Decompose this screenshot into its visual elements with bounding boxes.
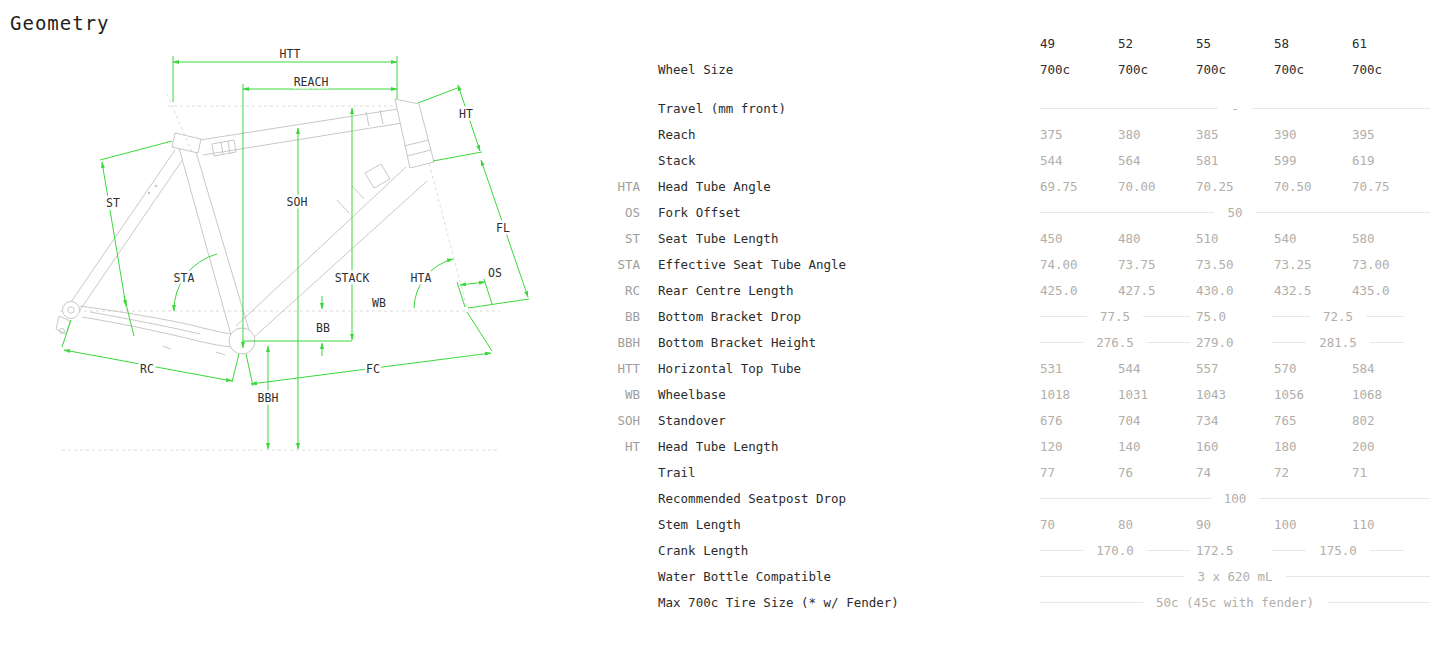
dim-label-fl: FL bbox=[496, 221, 510, 235]
table-row: Water Bottle Compatible3 x 620 mL bbox=[592, 563, 1430, 589]
row-label: Standover bbox=[658, 413, 1040, 428]
cell-value: 480 bbox=[1118, 231, 1196, 246]
cell-value: 531 bbox=[1040, 361, 1118, 376]
table-row: STSeat Tube Length450480510540580 bbox=[592, 225, 1430, 251]
table-header-row: 4952555861 bbox=[592, 30, 1430, 56]
cell-value: 427.5 bbox=[1118, 283, 1196, 298]
shared-value: - bbox=[1231, 101, 1239, 116]
cell-value: 73.50 bbox=[1196, 257, 1274, 272]
span-rule bbox=[1040, 108, 1218, 109]
shared-value-right-text: 175.0 bbox=[1319, 543, 1357, 558]
cell-value: 1031 bbox=[1118, 387, 1196, 402]
row-values: 375380385390395 bbox=[1040, 127, 1430, 142]
row-values: 700c700c700c700c700c bbox=[1040, 62, 1430, 77]
cell-value: 390 bbox=[1274, 127, 1352, 142]
row-label: Head Tube Length bbox=[658, 439, 1040, 454]
row-label: Horizontal Top Tube bbox=[658, 361, 1040, 376]
cell-value: 425.0 bbox=[1040, 283, 1118, 298]
table-row: Max 700c Tire Size (* w/ Fender)50c (45c… bbox=[592, 589, 1430, 615]
cell-value: 70 bbox=[1040, 517, 1118, 532]
row-values: - bbox=[1040, 101, 1430, 116]
cell-value: 765 bbox=[1274, 413, 1352, 428]
row-code: STA bbox=[592, 257, 640, 272]
cell-value: 734 bbox=[1196, 413, 1274, 428]
cell-value: 599 bbox=[1274, 153, 1352, 168]
dim-label-hta: HTA bbox=[411, 271, 432, 285]
table-row: HTHead Tube Length120140160180200 bbox=[592, 433, 1430, 459]
table-row: Reach375380385390395 bbox=[592, 121, 1430, 147]
dim-label-sta: STA bbox=[174, 271, 195, 285]
cell-value: 540 bbox=[1274, 231, 1352, 246]
row-label: Bottom Bracket Height bbox=[658, 335, 1040, 350]
cell-value: 73.00 bbox=[1352, 257, 1430, 272]
cell-value: 584 bbox=[1352, 361, 1430, 376]
row-label: Bottom Bracket Drop bbox=[658, 309, 1040, 324]
cell-value: 110 bbox=[1352, 517, 1430, 532]
cell-value: 1056 bbox=[1274, 387, 1352, 402]
construction-lines bbox=[60, 94, 500, 450]
table-row-wheel-size: Wheel Size700c700c700c700c700c bbox=[592, 56, 1430, 82]
dim-label-rc: RC bbox=[140, 362, 154, 376]
table-row: Travel (mm front)- bbox=[592, 95, 1430, 121]
cell-value: 395 bbox=[1352, 127, 1430, 142]
table-row: OSFork Offset50 bbox=[592, 199, 1430, 225]
cell-value: 90 bbox=[1196, 517, 1274, 532]
row-code: OS bbox=[592, 205, 640, 220]
span-rule bbox=[1040, 576, 1184, 577]
dim-label-reach: REACH bbox=[294, 75, 329, 89]
wheel-size-value: 700c bbox=[1352, 62, 1430, 77]
cell-value: 676 bbox=[1040, 413, 1118, 428]
row-values: 100 bbox=[1040, 491, 1430, 506]
table-row: WBWheelbase10181031104310561068 bbox=[592, 381, 1430, 407]
row-label: Crank Length bbox=[658, 543, 1040, 558]
shared-value-right: 175.0 bbox=[1272, 543, 1404, 558]
column-header-size: 52 bbox=[1118, 36, 1196, 51]
table-row: HTAHead Tube Angle69.7570.0070.2570.5070… bbox=[592, 173, 1430, 199]
row-values: 77.575.072.5 bbox=[1040, 309, 1430, 324]
frame-geometry-diagram: HTT REACH HT ST SOH FL STA STACK HTA OS … bbox=[0, 0, 560, 470]
geometry-page: Geometry bbox=[0, 0, 1445, 651]
column-header-size: 61 bbox=[1352, 36, 1430, 51]
dim-label-fc: FC bbox=[366, 362, 380, 376]
row-code: WB bbox=[592, 387, 640, 402]
row-label: Travel (mm front) bbox=[658, 101, 1040, 116]
row-code: HT bbox=[592, 439, 640, 454]
cell-value: 619 bbox=[1352, 153, 1430, 168]
column-header-size: 49 bbox=[1040, 36, 1118, 51]
row-values: 69.7570.0070.2570.5070.75 bbox=[1040, 179, 1430, 194]
span-rule bbox=[1370, 342, 1404, 343]
table-row: Stack544564581599619 bbox=[592, 147, 1430, 173]
row-code: RC bbox=[592, 283, 640, 298]
cell-value: 70.00 bbox=[1118, 179, 1196, 194]
wheel-size-value: 700c bbox=[1118, 62, 1196, 77]
row-values: 50 bbox=[1040, 205, 1430, 220]
row-values: 120140160180200 bbox=[1040, 439, 1430, 454]
row-label: Wheelbase bbox=[658, 387, 1040, 402]
cell-value: 75.0 bbox=[1190, 309, 1272, 324]
dim-label-bb: BB bbox=[316, 321, 330, 335]
row-values: 531544557570584 bbox=[1040, 361, 1430, 376]
row-values: 676704734765802 bbox=[1040, 413, 1430, 428]
shared-value-right-text: 281.5 bbox=[1319, 335, 1357, 350]
table-row: Trail7776747271 bbox=[592, 459, 1430, 485]
span-rule bbox=[1327, 602, 1430, 603]
shared-value-left-text: 77.5 bbox=[1100, 309, 1130, 324]
cell-value: 510 bbox=[1196, 231, 1274, 246]
cell-value: 1043 bbox=[1196, 387, 1274, 402]
shared-value: 50c (45c with fender) bbox=[1156, 595, 1314, 610]
shared-value: 50 bbox=[1227, 205, 1242, 220]
span-rule bbox=[1272, 550, 1306, 551]
row-values: 10181031104310561068 bbox=[1040, 387, 1430, 402]
cell-value: 160 bbox=[1196, 439, 1274, 454]
shared-value-right-text: 72.5 bbox=[1323, 309, 1353, 324]
cell-value: 380 bbox=[1118, 127, 1196, 142]
cell-value: 430.0 bbox=[1196, 283, 1274, 298]
table-row: RCRear Centre Length425.0427.5430.0432.5… bbox=[592, 277, 1430, 303]
span-rule bbox=[1286, 576, 1430, 577]
span-rule bbox=[1366, 316, 1404, 317]
cell-value: 71 bbox=[1352, 465, 1430, 480]
span-rule bbox=[1040, 212, 1214, 213]
cell-value: 581 bbox=[1196, 153, 1274, 168]
row-label: Reach bbox=[658, 127, 1040, 142]
row-label: Fork Offset bbox=[658, 205, 1040, 220]
cell-value: 77 bbox=[1040, 465, 1118, 480]
span-rule bbox=[1370, 550, 1404, 551]
dim-label-soh: SOH bbox=[287, 195, 308, 209]
span-rule bbox=[1256, 212, 1430, 213]
cell-value: 120 bbox=[1040, 439, 1118, 454]
shared-value-left-text: 276.5 bbox=[1096, 335, 1134, 350]
wheel-size-value: 700c bbox=[1040, 62, 1118, 77]
cell-value: 450 bbox=[1040, 231, 1118, 246]
dim-label-stack: STACK bbox=[335, 271, 370, 285]
shared-value-left: 170.0 bbox=[1040, 543, 1190, 558]
row-label: Rear Centre Length bbox=[658, 283, 1040, 298]
row-values: 7776747271 bbox=[1040, 465, 1430, 480]
table-row: HTTHorizontal Top Tube531544557570584 bbox=[592, 355, 1430, 381]
row-label: Effective Seat Tube Angle bbox=[658, 257, 1040, 272]
cell-value: 74 bbox=[1196, 465, 1274, 480]
span-rule bbox=[1143, 316, 1190, 317]
cell-value: 180 bbox=[1274, 439, 1352, 454]
row-code: SOH bbox=[592, 413, 640, 428]
cell-value: 73.75 bbox=[1118, 257, 1196, 272]
cell-value: 74.00 bbox=[1040, 257, 1118, 272]
table-row: Stem Length708090100110 bbox=[592, 511, 1430, 537]
dim-label-os: OS bbox=[488, 266, 502, 280]
shared-value-right: 281.5 bbox=[1272, 335, 1404, 350]
cell-value: 564 bbox=[1118, 153, 1196, 168]
row-code: HTT bbox=[592, 361, 640, 376]
shared-value: 3 x 620 mL bbox=[1197, 569, 1272, 584]
cell-value: 69.75 bbox=[1040, 179, 1118, 194]
row-label: Head Tube Angle bbox=[658, 179, 1040, 194]
row-label: Wheel Size bbox=[658, 62, 1040, 77]
cell-value: 375 bbox=[1040, 127, 1118, 142]
row-values: 170.0172.5175.0 bbox=[1040, 543, 1430, 558]
dim-label-htt: HTT bbox=[280, 47, 301, 61]
column-header-size: 55 bbox=[1196, 36, 1274, 51]
cell-value: 570 bbox=[1274, 361, 1352, 376]
shared-value-left-text: 170.0 bbox=[1096, 543, 1134, 558]
row-code: BB bbox=[592, 309, 640, 324]
cell-value: 80 bbox=[1118, 517, 1196, 532]
cell-value: 200 bbox=[1352, 439, 1430, 454]
cell-value: 70.25 bbox=[1196, 179, 1274, 194]
cell-value: 100 bbox=[1274, 517, 1352, 532]
cell-value: 704 bbox=[1118, 413, 1196, 428]
row-label: Stem Length bbox=[658, 517, 1040, 532]
span-rule bbox=[1040, 498, 1211, 499]
row-code: HTA bbox=[592, 179, 640, 194]
table-row: SOHStandover676704734765802 bbox=[592, 407, 1430, 433]
cell-value: 580 bbox=[1352, 231, 1430, 246]
cell-value: 140 bbox=[1118, 439, 1196, 454]
shared-value-right: 72.5 bbox=[1272, 309, 1404, 324]
cell-value: 432.5 bbox=[1274, 283, 1352, 298]
span-rule bbox=[1252, 108, 1430, 109]
row-label: Trail bbox=[658, 465, 1040, 480]
table-row: STAEffective Seat Tube Angle74.0073.7573… bbox=[592, 251, 1430, 277]
span-rule bbox=[1272, 316, 1310, 317]
dim-label-wb: WB bbox=[372, 296, 386, 310]
cell-value: 76 bbox=[1118, 465, 1196, 480]
row-values: 708090100110 bbox=[1040, 517, 1430, 532]
cell-value: 385 bbox=[1196, 127, 1274, 142]
row-label: Water Bottle Compatible bbox=[658, 569, 1040, 584]
cell-value: 73.25 bbox=[1274, 257, 1352, 272]
span-rule bbox=[1259, 498, 1430, 499]
dim-label-bbh: BBH bbox=[258, 391, 279, 405]
shared-value-left: 276.5 bbox=[1040, 335, 1190, 350]
cell-value: 70.50 bbox=[1274, 179, 1352, 194]
row-values: 4952555861 bbox=[1040, 36, 1430, 51]
row-values: 450480510540580 bbox=[1040, 231, 1430, 246]
cell-value: 802 bbox=[1352, 413, 1430, 428]
row-label: Max 700c Tire Size (* w/ Fender) bbox=[658, 595, 1040, 610]
row-label: Seat Tube Length bbox=[658, 231, 1040, 246]
table-row: BBHBottom Bracket Height276.5279.0281.5 bbox=[592, 329, 1430, 355]
row-values: 276.5279.0281.5 bbox=[1040, 335, 1430, 350]
row-values: 3 x 620 mL bbox=[1040, 569, 1430, 584]
cell-value: 172.5 bbox=[1190, 543, 1272, 558]
cell-value: 72 bbox=[1274, 465, 1352, 480]
cell-value: 544 bbox=[1118, 361, 1196, 376]
row-code: ST bbox=[592, 231, 640, 246]
table-row: Crank Length170.0172.5175.0 bbox=[592, 537, 1430, 563]
row-values: 425.0427.5430.0432.5435.0 bbox=[1040, 283, 1430, 298]
span-rule bbox=[1147, 550, 1190, 551]
table-row: Recommended Seatpost Drop100 bbox=[592, 485, 1430, 511]
cell-value: 544 bbox=[1040, 153, 1118, 168]
dim-label-st: ST bbox=[106, 196, 120, 210]
span-rule bbox=[1272, 342, 1306, 343]
geometry-table: 4952555861Wheel Size700c700c700c700c700c… bbox=[592, 30, 1430, 615]
row-values: 544564581599619 bbox=[1040, 153, 1430, 168]
cell-value: 557 bbox=[1196, 361, 1274, 376]
table-row: BBBottom Bracket Drop77.575.072.5 bbox=[592, 303, 1430, 329]
row-code: BBH bbox=[592, 335, 640, 350]
span-rule bbox=[1040, 316, 1087, 317]
cell-value: 279.0 bbox=[1190, 335, 1272, 350]
span-rule bbox=[1040, 342, 1083, 343]
header-gap bbox=[592, 82, 1430, 95]
cell-value: 1068 bbox=[1352, 387, 1430, 402]
column-header-size: 58 bbox=[1274, 36, 1352, 51]
row-label: Stack bbox=[658, 153, 1040, 168]
shared-value: 100 bbox=[1224, 491, 1247, 506]
span-rule bbox=[1040, 550, 1083, 551]
shared-value-left: 77.5 bbox=[1040, 309, 1190, 324]
cell-value: 435.0 bbox=[1352, 283, 1430, 298]
cell-value: 1018 bbox=[1040, 387, 1118, 402]
row-label: Recommended Seatpost Drop bbox=[658, 491, 1040, 506]
wheel-size-value: 700c bbox=[1274, 62, 1352, 77]
row-values: 74.0073.7573.5073.2573.00 bbox=[1040, 257, 1430, 272]
dim-label-ht: HT bbox=[459, 107, 473, 121]
row-values: 50c (45c with fender) bbox=[1040, 595, 1430, 610]
wheel-size-value: 700c bbox=[1196, 62, 1274, 77]
span-rule bbox=[1040, 602, 1143, 603]
span-rule bbox=[1147, 342, 1190, 343]
cell-value: 70.75 bbox=[1352, 179, 1430, 194]
